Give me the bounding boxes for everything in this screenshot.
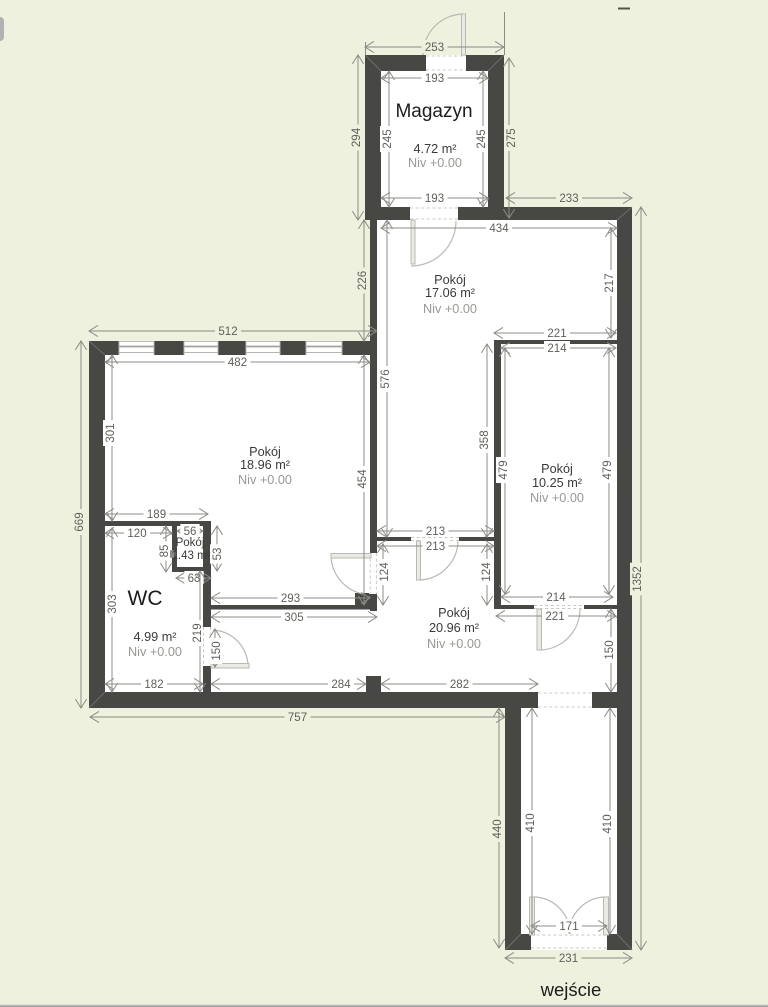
svg-text:221: 221 bbox=[545, 611, 564, 623]
svg-text:217: 217 bbox=[604, 273, 616, 292]
svg-text:Niv +0.00: Niv +0.00 bbox=[427, 637, 481, 651]
svg-text:305: 305 bbox=[284, 612, 303, 624]
svg-text:85: 85 bbox=[159, 545, 171, 558]
svg-text:4.99 m²: 4.99 m² bbox=[133, 630, 176, 644]
svg-text:124: 124 bbox=[481, 562, 493, 582]
svg-text:189: 189 bbox=[147, 509, 166, 521]
svg-text:282: 282 bbox=[450, 679, 469, 691]
svg-text:479: 479 bbox=[602, 460, 614, 479]
svg-text:Niv +0.00: Niv +0.00 bbox=[238, 473, 292, 487]
svg-text:182: 182 bbox=[144, 679, 163, 691]
svg-text:193: 193 bbox=[425, 73, 444, 85]
svg-text:Pokój: Pokój bbox=[249, 445, 281, 459]
svg-text:226: 226 bbox=[357, 271, 369, 290]
svg-text:20.96 m²: 20.96 m² bbox=[429, 621, 479, 635]
svg-text:358: 358 bbox=[479, 430, 491, 449]
svg-text:434: 434 bbox=[489, 223, 509, 235]
svg-text:454: 454 bbox=[357, 469, 369, 489]
svg-text:669: 669 bbox=[74, 512, 86, 531]
svg-text:150: 150 bbox=[211, 641, 223, 660]
svg-text:479: 479 bbox=[498, 460, 510, 479]
svg-text:Niv +0.00: Niv +0.00 bbox=[530, 491, 584, 505]
svg-text:Niv +0.00: Niv +0.00 bbox=[408, 156, 462, 170]
svg-text:301: 301 bbox=[105, 423, 117, 442]
svg-text:245: 245 bbox=[382, 129, 394, 148]
svg-text:757: 757 bbox=[288, 712, 307, 724]
svg-text:Magazyn: Magazyn bbox=[395, 101, 472, 122]
svg-text:150: 150 bbox=[604, 640, 616, 659]
svg-text:284: 284 bbox=[331, 679, 351, 691]
svg-text:253: 253 bbox=[425, 42, 444, 54]
svg-text:303: 303 bbox=[107, 594, 119, 613]
svg-text:Niv +0.00: Niv +0.00 bbox=[423, 302, 477, 316]
svg-text:482: 482 bbox=[228, 357, 247, 369]
svg-text:233: 233 bbox=[559, 193, 578, 205]
svg-text:410: 410 bbox=[602, 814, 614, 833]
svg-text:213: 213 bbox=[426, 541, 445, 553]
svg-text:410: 410 bbox=[525, 813, 537, 832]
svg-text:17.06 m²: 17.06 m² bbox=[425, 286, 475, 300]
svg-text:63: 63 bbox=[188, 573, 201, 585]
svg-text:213: 213 bbox=[426, 526, 445, 538]
svg-text:231: 231 bbox=[559, 953, 578, 965]
svg-text:Pokój: Pokój bbox=[434, 273, 466, 287]
svg-text:Pokój: Pokój bbox=[176, 537, 205, 549]
svg-text:WC: WC bbox=[128, 587, 163, 610]
svg-text:53: 53 bbox=[212, 548, 224, 561]
svg-text:275: 275 bbox=[506, 128, 518, 147]
svg-text:Pokój: Pokój bbox=[541, 462, 573, 476]
svg-text:576: 576 bbox=[380, 369, 392, 388]
svg-text:4.72 m²: 4.72 m² bbox=[413, 142, 456, 156]
svg-text:294: 294 bbox=[351, 127, 363, 147]
svg-text:440: 440 bbox=[492, 819, 504, 838]
svg-text:124: 124 bbox=[379, 562, 391, 582]
svg-text:512: 512 bbox=[218, 326, 237, 338]
svg-text:Niv +0.00: Niv +0.00 bbox=[128, 645, 182, 659]
svg-text:219: 219 bbox=[192, 623, 204, 642]
svg-text:Pokój: Pokój bbox=[438, 606, 470, 620]
svg-text:193: 193 bbox=[425, 193, 444, 205]
svg-text:wejście: wejście bbox=[540, 979, 602, 1000]
svg-text:245: 245 bbox=[476, 129, 488, 148]
svg-text:214: 214 bbox=[546, 592, 566, 604]
svg-text:214: 214 bbox=[547, 343, 567, 355]
svg-text:221: 221 bbox=[547, 328, 566, 340]
svg-text:10.25 m²: 10.25 m² bbox=[532, 476, 582, 490]
svg-text:120: 120 bbox=[127, 528, 146, 540]
svg-text:1352: 1352 bbox=[632, 566, 644, 592]
svg-text:293: 293 bbox=[281, 593, 300, 605]
svg-text:18.96 m²: 18.96 m² bbox=[240, 458, 290, 472]
svg-text:1.43 m²: 1.43 m² bbox=[172, 550, 211, 562]
svg-text:171: 171 bbox=[559, 921, 578, 933]
